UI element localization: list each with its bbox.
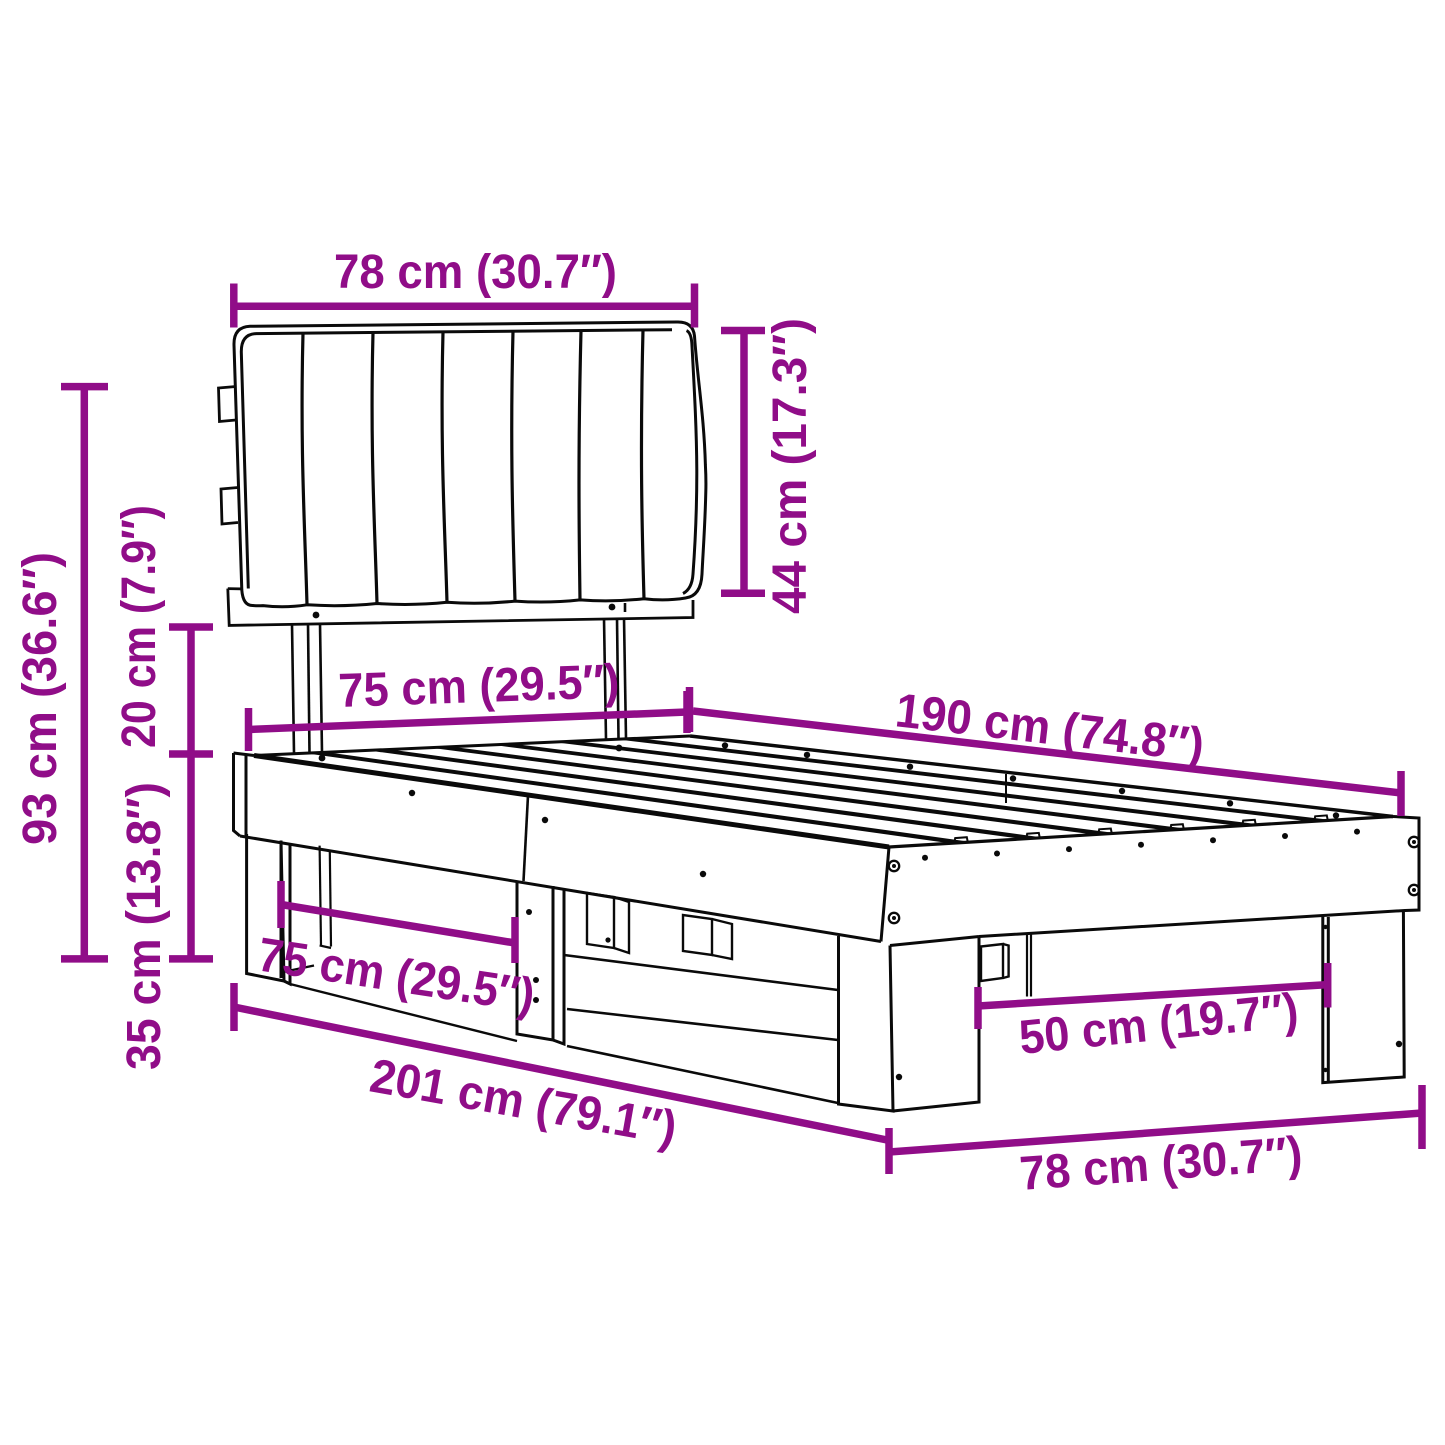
svg-text:78 cm (30.7″): 78 cm (30.7″): [334, 246, 617, 299]
svg-text:35 cm (13.8″): 35 cm (13.8″): [118, 782, 171, 1070]
svg-text:93 cm (36.6″): 93 cm (36.6″): [14, 552, 67, 845]
svg-text:20 cm (7.9″): 20 cm (7.9″): [113, 505, 166, 748]
svg-text:75 cm (29.5″): 75 cm (29.5″): [338, 655, 621, 718]
svg-text:44 cm (17.3″): 44 cm (17.3″): [764, 318, 817, 614]
